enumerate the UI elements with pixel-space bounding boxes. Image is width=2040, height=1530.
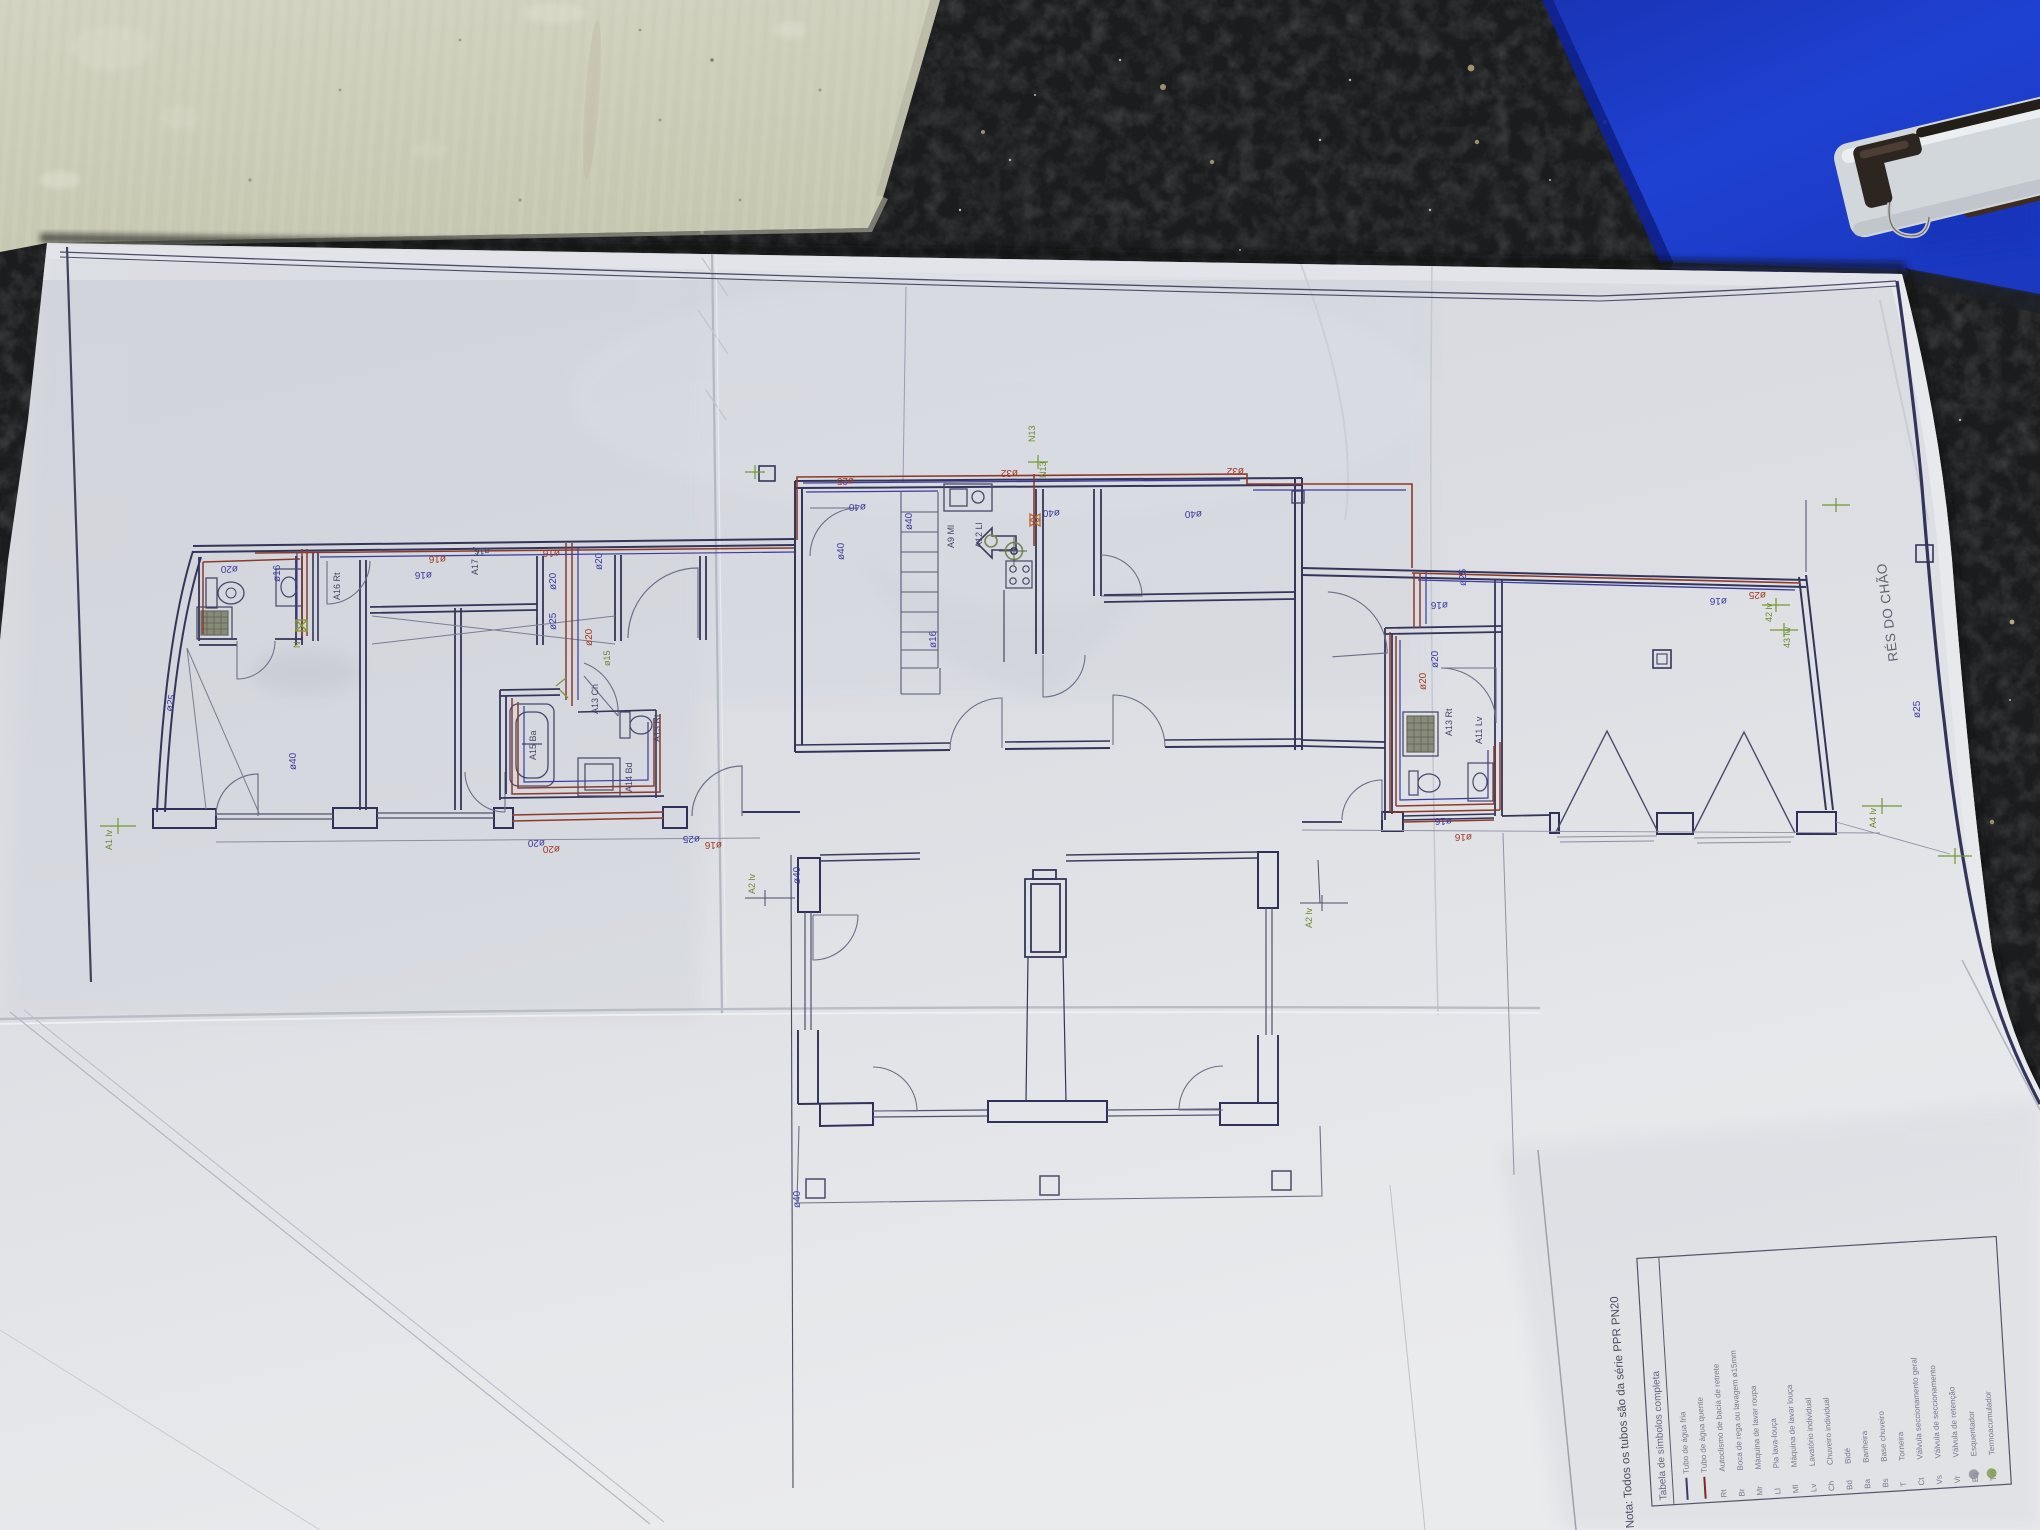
svg-text:Bidé: Bidé: [1843, 1447, 1853, 1464]
svg-text:Lv: Lv: [1809, 1483, 1818, 1492]
svg-text:A11 Lv: A11 Lv: [1474, 716, 1484, 744]
svg-text:ø25: ø25: [1912, 700, 1923, 718]
svg-text:Br: Br: [1737, 1488, 1746, 1497]
svg-text:A16 Rt: A16 Rt: [332, 572, 342, 600]
svg-text:ø25: ø25: [836, 475, 854, 486]
svg-text:ø25: ø25: [682, 833, 700, 844]
svg-text:ø16: ø16: [1430, 599, 1448, 610]
svg-text:ø16: ø16: [1434, 815, 1452, 826]
svg-text:ø16: ø16: [1709, 595, 1727, 606]
svg-text:ø20: ø20: [220, 563, 238, 574]
svg-text:ø20: ø20: [542, 843, 560, 854]
svg-text:ø32: ø32: [1226, 465, 1244, 476]
svg-text:ø32: ø32: [1000, 467, 1018, 478]
svg-text:42 lv: 42 lv: [1764, 602, 1774, 622]
svg-text:A13 Rt: A13 Rt: [652, 714, 662, 742]
svg-text:Torneira: Torneira: [1896, 1431, 1907, 1461]
svg-text:Bs: Bs: [1881, 1478, 1891, 1488]
svg-text:ø16: ø16: [928, 630, 939, 648]
svg-text:Ba: Ba: [1863, 1478, 1873, 1489]
svg-text:A15 Ba: A15 Ba: [528, 730, 538, 760]
svg-text:Bd: Bd: [1845, 1480, 1855, 1490]
svg-text:N13: N13: [1038, 461, 1048, 478]
svg-text:ø20: ø20: [584, 628, 595, 646]
svg-text:ø16: ø16: [428, 553, 446, 564]
svg-text:A14 Bd: A14 Bd: [624, 762, 634, 792]
svg-text:Rt: Rt: [1719, 1489, 1729, 1498]
svg-text:A13 Rt: A13 Rt: [1444, 708, 1454, 736]
svg-text:ø16: ø16: [414, 569, 432, 580]
svg-text:A2 lv: A2 lv: [1304, 907, 1314, 928]
svg-text:ø20: ø20: [548, 572, 559, 590]
svg-text:A13 Ch: A13 Ch: [590, 684, 600, 714]
svg-text:ø16: ø16: [704, 839, 722, 850]
svg-text:A9 Ml: A9 Ml: [946, 525, 956, 548]
svg-text:T: T: [1899, 1481, 1908, 1487]
svg-text:Mr: Mr: [1755, 1485, 1765, 1495]
svg-text:N13: N13: [1027, 425, 1037, 442]
svg-text:ø40: ø40: [836, 542, 847, 560]
svg-text:Ct: Ct: [1917, 1476, 1927, 1485]
svg-text:Vs: Vs: [1935, 1475, 1945, 1485]
svg-text:ø40: ø40: [848, 501, 866, 512]
svg-text:ø40: ø40: [288, 752, 299, 770]
svg-text:ø25: ø25: [548, 612, 559, 630]
svg-text:Ll: Ll: [1773, 1488, 1782, 1495]
svg-text:Vr: Vr: [1953, 1475, 1962, 1484]
svg-text:ø15: ø15: [602, 650, 612, 666]
svg-text:ø40: ø40: [1184, 508, 1202, 519]
svg-text:Ch: Ch: [1827, 1480, 1837, 1491]
svg-text:A4 lv: A4 lv: [1868, 807, 1878, 828]
svg-text:ø20: ø20: [1430, 650, 1441, 668]
svg-text:ø40: ø40: [1042, 507, 1060, 518]
svg-text:ø16: ø16: [272, 564, 283, 582]
svg-text:ø16: ø16: [542, 547, 560, 558]
svg-text:ø25: ø25: [1458, 568, 1469, 586]
svg-text:ø40: ø40: [792, 1190, 803, 1208]
svg-text:A1 lv: A1 lv: [104, 829, 114, 850]
svg-text:ø40: ø40: [904, 512, 915, 530]
svg-text:ø20: ø20: [1418, 672, 1429, 690]
svg-text:N: N: [292, 642, 302, 649]
svg-text:ø20: ø20: [527, 837, 545, 848]
svg-text:A2 lv: A2 lv: [747, 873, 757, 894]
svg-text:ø20: ø20: [594, 552, 605, 570]
svg-text:A12 Ll: A12 Ll: [974, 522, 984, 548]
svg-text:ø16: ø16: [1454, 831, 1472, 842]
svg-text:ø25: ø25: [1748, 589, 1766, 600]
svg-text:43 lw: 43 lw: [1782, 626, 1792, 648]
svg-text:ø40: ø40: [792, 866, 803, 884]
svg-text:Ml: Ml: [1791, 1484, 1801, 1493]
svg-text:A17 Lv: A17 Lv: [470, 546, 480, 575]
